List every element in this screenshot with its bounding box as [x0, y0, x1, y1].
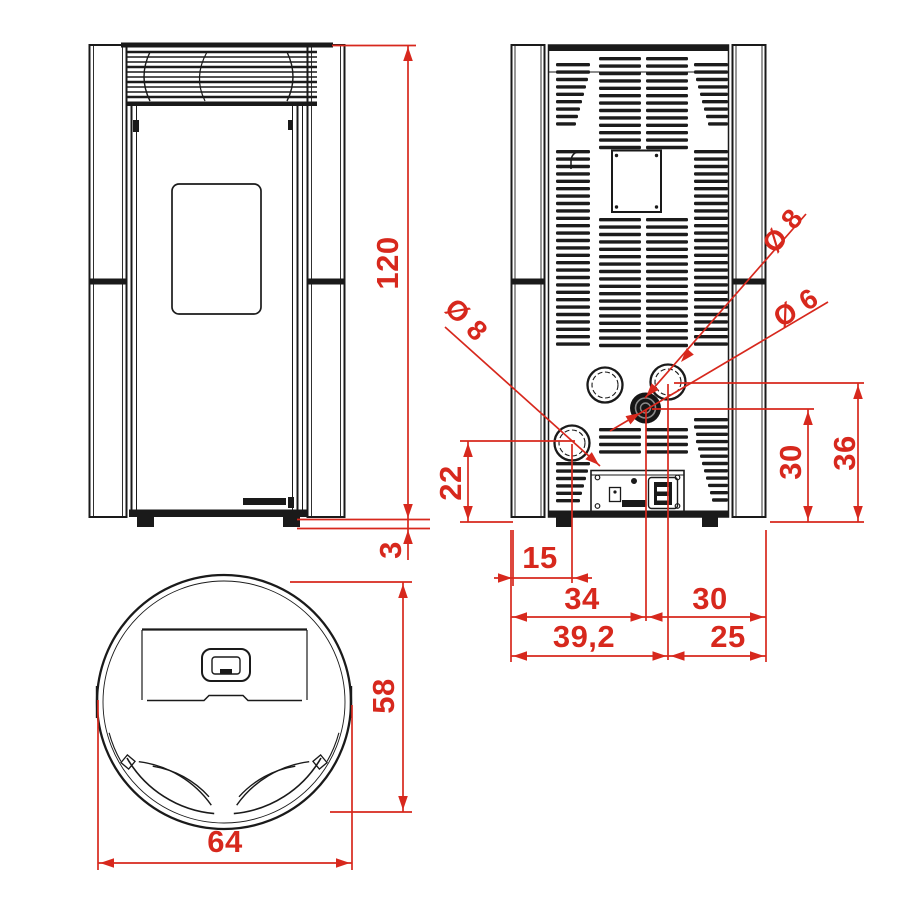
brand-plate [243, 498, 286, 505]
door-glass [172, 184, 261, 314]
rear-vent-slats [556, 57, 728, 502]
hopper-lid [142, 630, 307, 701]
dim-36-label: 36 [827, 435, 863, 470]
rear-foot-right [702, 517, 718, 527]
dim-30-bottom-label: 30 [692, 581, 727, 617]
door-hinge [133, 120, 139, 132]
rear-view [512, 45, 766, 527]
dim-34-label: 34 [564, 581, 599, 617]
lid-handle [202, 649, 250, 681]
dim-base-label: 3 [373, 541, 409, 559]
dimension-lines [98, 46, 864, 871]
door-latch [288, 120, 293, 130]
front-grille [127, 52, 317, 97]
junction-box [612, 151, 661, 213]
rear-foot-left [556, 517, 572, 527]
dim-392-label: 39,2 [553, 619, 615, 655]
dim-30-vertical-label: 30 [773, 444, 809, 479]
front-foot-left [137, 517, 154, 527]
dim-height-label: 120 [370, 236, 406, 289]
dim-offset15-label: 15 [522, 540, 557, 576]
power-switch [610, 488, 621, 502]
drawing-canvas [0, 0, 900, 900]
knockout-ring-upper-left [588, 368, 623, 403]
dim-depth-label: 58 [366, 678, 402, 713]
technical-drawing: 120 3 58 64 15 34 30 39,2 25 22 30 36 Ø … [0, 0, 900, 900]
dimension-arrows [100, 47, 863, 868]
front-view [90, 43, 345, 528]
dim-width-label: 64 [207, 824, 242, 860]
top-view [97, 575, 351, 829]
dim-22-label: 22 [433, 465, 469, 500]
dim-25-label: 25 [710, 619, 745, 655]
electrical-panel [591, 471, 684, 513]
front-foot-right [283, 517, 300, 527]
